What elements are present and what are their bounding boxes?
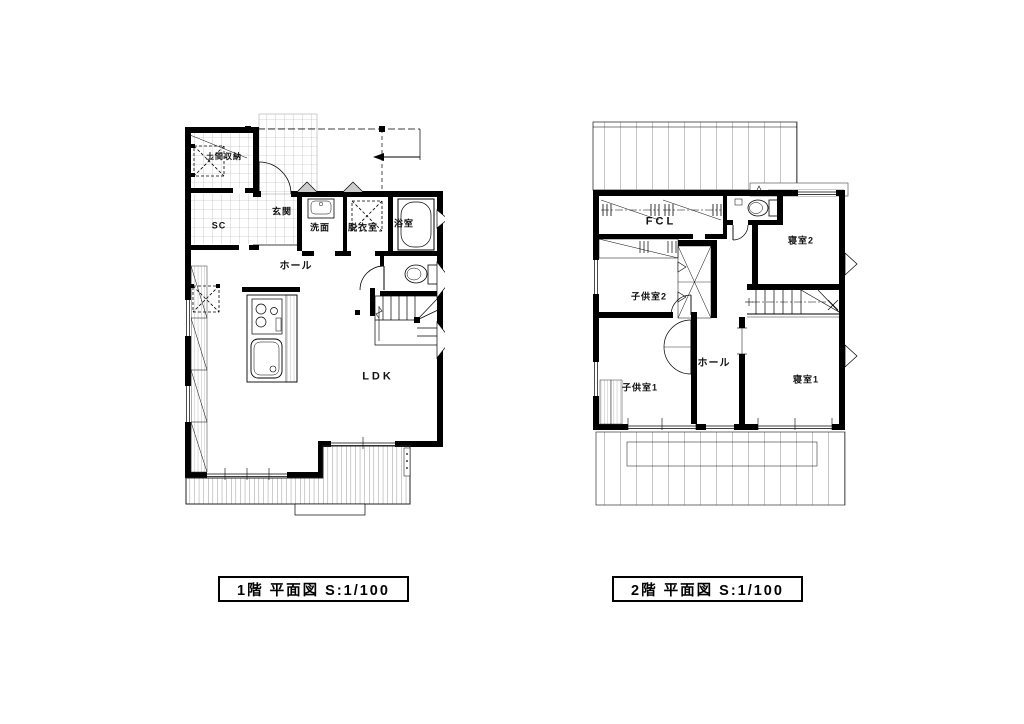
- room-label-shoe-closet: SC: [212, 222, 227, 231]
- floor1-caption-box: 1階 平面図 S:1/100: [218, 576, 409, 602]
- room-label-kids-room-2: 子供室2: [631, 293, 667, 302]
- floor2-drawing: [588, 112, 858, 512]
- room-label-kids-room-1: 子供室1: [622, 384, 658, 393]
- drawing-page: 土間収納 SC 玄関 洗面 脱衣室 浴室 ホール LDK FCL 子供室2 子供…: [0, 0, 1024, 724]
- room-label-washroom: 洗面: [310, 224, 330, 233]
- room-label-family-closet: FCL: [646, 217, 676, 228]
- floor2-caption-text: 2階 平面図 S:1/100: [631, 579, 784, 600]
- room-label-entrance: 玄関: [272, 208, 292, 217]
- floor2-caption-box: 2階 平面図 S:1/100: [612, 576, 803, 602]
- floor2-plan: [588, 112, 858, 512]
- room-label-hall-1f: ホール: [280, 262, 313, 272]
- room-label-dressing-room: 脱衣室: [348, 224, 378, 233]
- room-label-ldk: LDK: [362, 372, 394, 383]
- room-label-bedroom-2: 寝室2: [788, 237, 814, 246]
- floor1-plan: [185, 110, 445, 520]
- room-label-hall-2f: ホール: [698, 359, 731, 369]
- room-label-doma-storage: 土間収納: [206, 153, 242, 161]
- floor1-caption-text: 1階 平面図 S:1/100: [237, 579, 390, 600]
- room-label-bedroom-1: 寝室1: [793, 376, 819, 385]
- room-label-bathroom: 浴室: [394, 220, 414, 229]
- floor1-drawing: [185, 110, 445, 520]
